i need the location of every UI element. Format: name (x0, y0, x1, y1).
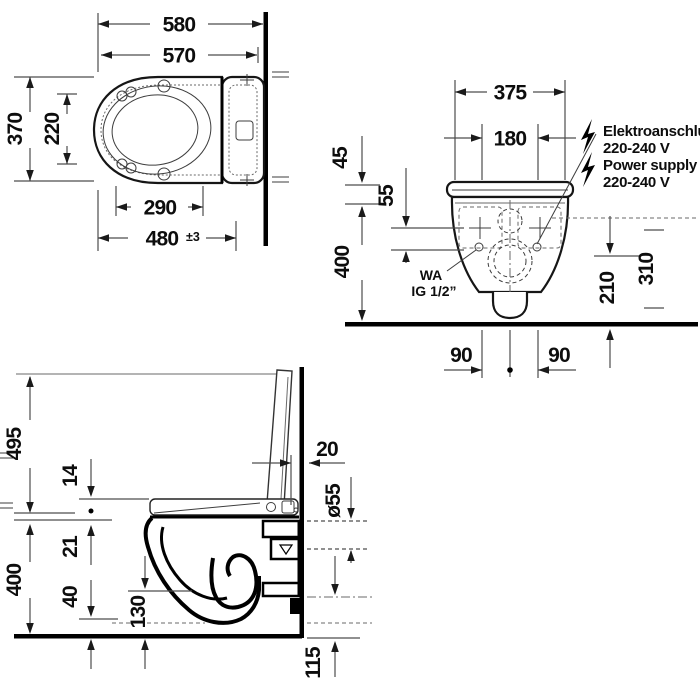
dim-label-pipe-diameter: ø55 (322, 483, 345, 518)
floor-line (14, 634, 302, 639)
arrowhead (402, 216, 410, 227)
dim-label-570: 570 (163, 45, 196, 68)
arrowhead (87, 525, 95, 536)
floor-line (345, 322, 698, 327)
arrowhead (358, 206, 366, 217)
dim-label-370: 370 (4, 113, 27, 146)
electrical-label: Elektroanschluss (603, 123, 700, 140)
dim-label-220: 220 (41, 113, 64, 146)
open-lid (267, 370, 292, 506)
arrowhead (402, 251, 410, 262)
arrowhead (141, 639, 149, 650)
arrowhead (26, 376, 34, 387)
arrowhead (26, 524, 34, 535)
bowl-inner-profile (162, 527, 227, 599)
power-label: Power supply (603, 157, 698, 174)
arrowhead (331, 641, 339, 652)
dim-label-20: 20 (316, 438, 338, 461)
arrowhead (26, 623, 34, 634)
dim-label-180: 180 (494, 128, 527, 151)
arrowhead (87, 486, 95, 497)
dim-label-130: 130 (127, 596, 150, 629)
arrowhead (606, 329, 614, 340)
arrowhead (538, 134, 549, 142)
arrowhead (26, 170, 34, 181)
arrowhead (471, 134, 482, 142)
dim-label-375: 375 (494, 82, 528, 105)
dim-label-115: 115 (302, 646, 325, 679)
arrowhead (538, 366, 549, 374)
dim-label-40: 40 (59, 586, 82, 608)
power-voltage: 220-240 V (603, 174, 670, 191)
dim-label-400: 400 (331, 246, 354, 279)
dim-label-210: 210 (596, 272, 619, 305)
dim-label-45: 45 (329, 146, 352, 169)
arrowhead (331, 584, 339, 595)
electrical-voltage: 220-240 V (603, 140, 670, 157)
arrowhead (246, 51, 257, 59)
arrowhead (26, 77, 34, 88)
technical-drawing: 580 570 370 220 290 (0, 0, 700, 700)
arrowhead (101, 51, 112, 59)
flush-connection (263, 521, 299, 537)
dim-label-400: 400 (3, 564, 26, 597)
arrowhead (192, 203, 203, 211)
dim-label-55: 55 (375, 184, 398, 207)
drain-bracket (263, 583, 299, 596)
dim-tolerance: ±3 (186, 230, 200, 244)
center-dot (507, 367, 513, 373)
dim-label-495: 495 (3, 427, 26, 461)
dim-label-90-right: 90 (548, 344, 570, 367)
arrowhead (347, 508, 355, 519)
dim-label-480: 480 (146, 228, 179, 251)
arrowhead (87, 639, 95, 650)
arrowhead (63, 94, 71, 105)
arrowhead (358, 172, 366, 183)
arrowhead (87, 606, 95, 617)
wa-label: WA (420, 267, 443, 283)
side-view: 495 400 14 21 40 130 (0, 367, 372, 679)
arrowhead (116, 203, 127, 211)
outlet-spigot (493, 292, 527, 318)
dim-label-90-left: 90 (450, 344, 472, 367)
arrowhead (98, 234, 109, 242)
arrowhead (606, 243, 614, 254)
arrowhead (358, 310, 366, 321)
front-view: WA IG 1/2” Elektroanschluss 220-240 V Po… (329, 80, 700, 378)
arrowhead (252, 20, 263, 28)
toilet-body-outline (452, 197, 568, 292)
arrowhead (98, 20, 109, 28)
drain-pipe-section (290, 598, 301, 614)
arrowhead (471, 366, 482, 374)
dimension-dot (89, 509, 94, 514)
top-view: 580 570 370 220 290 (4, 12, 289, 251)
wall-section-line (300, 367, 305, 638)
toilet-tank-unit-outline (222, 77, 264, 183)
arrowhead (347, 550, 355, 561)
arrowhead (26, 502, 34, 513)
arrowhead (554, 88, 565, 96)
arrowhead (63, 153, 71, 164)
wa-size-label: IG 1/2” (411, 283, 456, 299)
dim-label-290: 290 (144, 197, 177, 220)
dim-label-580: 580 (163, 14, 196, 37)
trap-profile (211, 555, 256, 607)
toilet-seat-outline (94, 77, 222, 183)
arrowhead (141, 578, 149, 589)
dim-label-21: 21 (59, 535, 82, 558)
dim-label-310: 310 (635, 253, 658, 286)
arrowhead (225, 234, 236, 242)
dim-label-14: 14 (59, 464, 82, 487)
arrowhead (455, 88, 466, 96)
